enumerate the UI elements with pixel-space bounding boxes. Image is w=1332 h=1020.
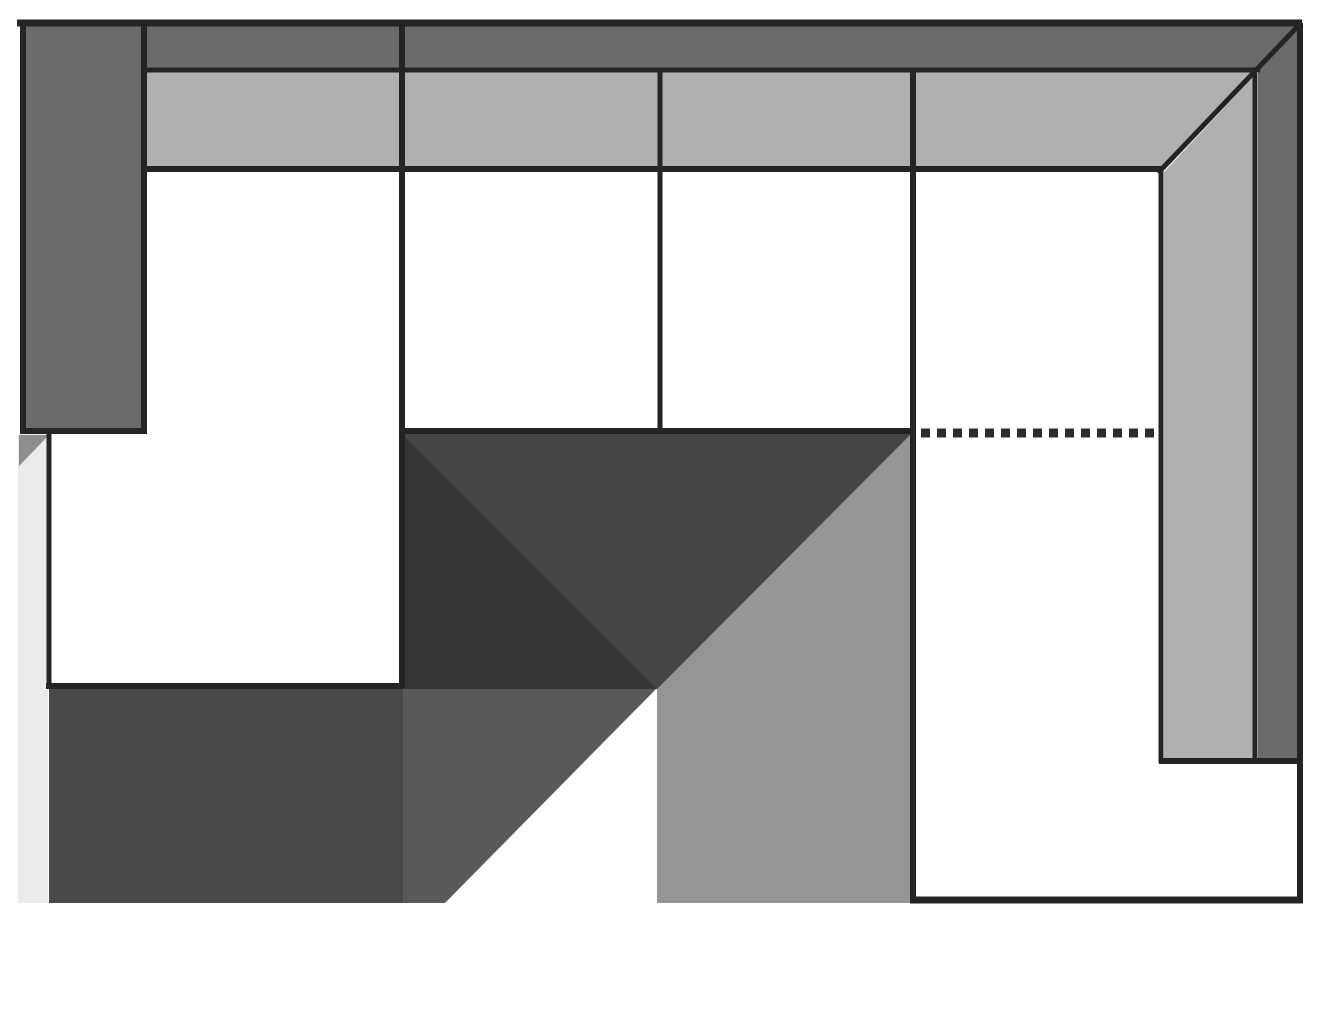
sectional-sofa-diagram [0,0,1332,1020]
top-backrest-bar [146,20,1303,70]
top-seatback-band [146,70,1257,170]
bottom-left-ottoman [49,687,403,903]
left-armrest [20,21,146,433]
right-seatback-band [1164,77,1253,762]
page-background [0,0,1332,1020]
bottom-center-wedge [403,687,658,903]
right-backrest-bar [1258,26,1299,762]
left-edge-strip [18,434,48,903]
